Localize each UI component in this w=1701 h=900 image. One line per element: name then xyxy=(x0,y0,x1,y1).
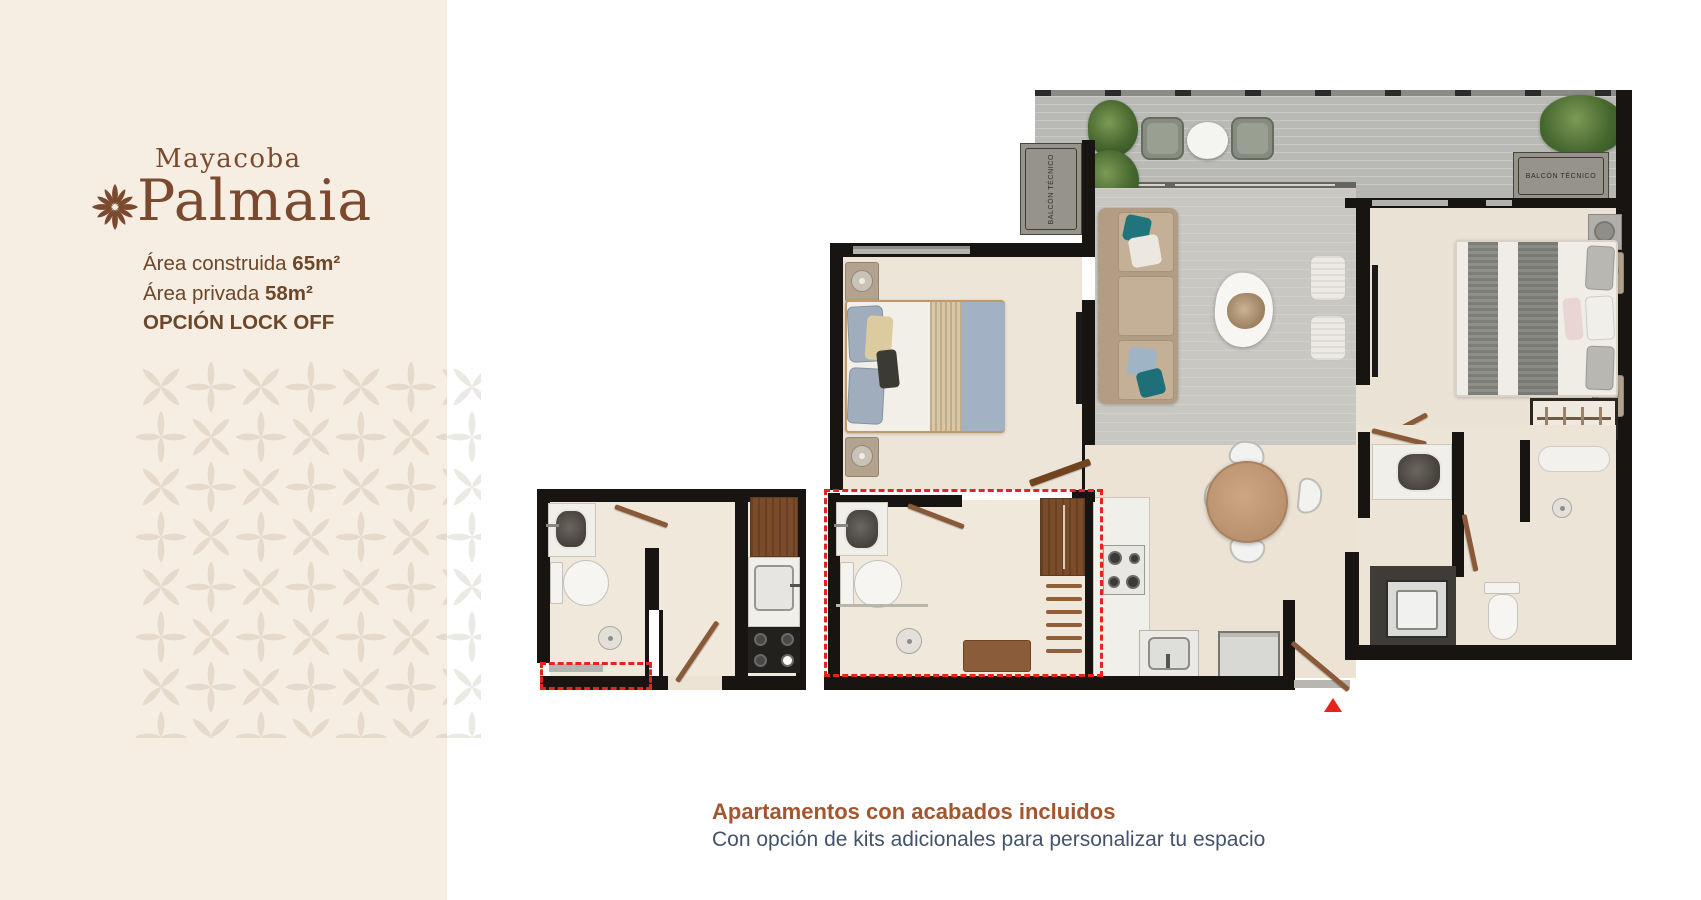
wall xyxy=(659,610,663,676)
wall xyxy=(1520,440,1530,522)
area-built-value: 65m² xyxy=(292,252,340,275)
sofa-pillow-white xyxy=(1128,234,1163,269)
technical-balcony-left: BALCÓN TÉCNICO xyxy=(1020,143,1082,235)
wall xyxy=(830,243,843,490)
bed-2-pillow xyxy=(1585,245,1615,290)
wall xyxy=(1082,140,1095,245)
stove xyxy=(1103,545,1145,595)
burner xyxy=(1126,575,1140,589)
washer-window xyxy=(1396,590,1438,630)
bed-1-duvet xyxy=(962,302,1005,431)
terrace-chair xyxy=(1141,117,1184,160)
sofa-cushion xyxy=(1118,276,1174,336)
terrace-chair xyxy=(1231,117,1274,160)
bed-2-pillow xyxy=(1585,295,1615,340)
terrace-railing xyxy=(1035,90,1632,96)
lockoff-highlight-main xyxy=(824,489,1103,677)
wall xyxy=(1452,432,1464,577)
footer-title: Apartamentos con acabados incluidos xyxy=(712,799,1115,825)
wall xyxy=(1350,645,1632,660)
bedroom-2-tv xyxy=(1372,265,1378,377)
burner xyxy=(754,633,767,646)
area-private-label: Área privada xyxy=(143,282,259,305)
area-built-label: Área construida xyxy=(143,252,287,275)
footer-subtitle: Con opción de kits adicionales para pers… xyxy=(712,828,1265,852)
kitchenette-cabinet xyxy=(750,497,798,557)
toilet xyxy=(1488,594,1518,640)
sliding-door-glass xyxy=(1175,184,1335,186)
technical-balcony-left-label: BALCÓN TÉCNICO xyxy=(1048,154,1055,225)
lamp xyxy=(851,270,873,292)
burner xyxy=(1108,576,1120,588)
brand-title: Palmaia xyxy=(137,168,372,234)
lockoff-option-label: OPCIÓN LOCK OFF xyxy=(143,311,334,335)
lockoff-floor-patch xyxy=(660,676,722,690)
bedroom-2-window xyxy=(1372,200,1448,206)
wall xyxy=(645,548,659,610)
area-private-line: Área privada 58m² xyxy=(143,282,313,306)
bedroom-1-window xyxy=(853,246,970,254)
lamp xyxy=(851,445,873,467)
lockoff-highlight-small xyxy=(540,662,652,690)
lockoff-sink xyxy=(554,509,588,549)
wall xyxy=(824,676,1288,690)
wall xyxy=(1358,432,1370,518)
toilet-tank xyxy=(550,562,563,604)
burner xyxy=(754,654,767,667)
petal-pattern-beige xyxy=(136,362,447,738)
bedroom-1-tv xyxy=(1076,312,1082,404)
wall xyxy=(735,489,748,679)
ac-vent-fan xyxy=(1594,221,1615,242)
terrace-plant xyxy=(1540,95,1626,155)
toilet-tank xyxy=(1484,582,1520,594)
bedroom-2-window xyxy=(1486,200,1512,206)
burner xyxy=(781,633,794,646)
dining-table xyxy=(1206,461,1288,543)
bed-2-blanket xyxy=(1468,242,1498,395)
shower-drain xyxy=(598,626,622,650)
shower-drain xyxy=(1552,498,1572,518)
shower-bench xyxy=(1538,446,1610,472)
area-private-value: 58m² xyxy=(265,282,313,305)
bed-2-pillow-pink xyxy=(1562,297,1584,340)
bed-1-pillow-dark xyxy=(876,349,900,389)
page: Mayacoba Palmaia Área construida 65m² Ár… xyxy=(0,0,1701,900)
terrace-table xyxy=(1187,122,1228,159)
burner xyxy=(781,654,794,667)
wall xyxy=(1345,552,1359,660)
burner xyxy=(1129,553,1140,564)
faucet xyxy=(546,524,559,527)
toilet xyxy=(563,560,609,606)
technical-balcony-right: BALCÓN TÉCNICO xyxy=(1513,152,1609,200)
kitchenette-stove xyxy=(748,627,800,673)
wall xyxy=(722,676,806,690)
pouf xyxy=(1310,255,1346,301)
area-built-line: Área construida 65m² xyxy=(143,252,340,276)
technical-balcony-frame xyxy=(1518,157,1604,195)
petal-pattern-gray xyxy=(447,362,481,738)
wall xyxy=(1356,198,1370,385)
burner xyxy=(1108,551,1122,565)
pouf xyxy=(1310,315,1346,361)
ensuite-sink xyxy=(1396,452,1442,492)
terrace-plant xyxy=(1088,100,1138,156)
bed-2-pillow xyxy=(1585,346,1615,391)
kitchenette-sink xyxy=(754,565,794,611)
entrance-marker-triangle xyxy=(1324,698,1342,712)
faucet xyxy=(1166,654,1170,668)
bed-1-runner xyxy=(930,302,962,431)
faucet xyxy=(790,584,800,587)
bed-2-blanket xyxy=(1518,242,1558,395)
